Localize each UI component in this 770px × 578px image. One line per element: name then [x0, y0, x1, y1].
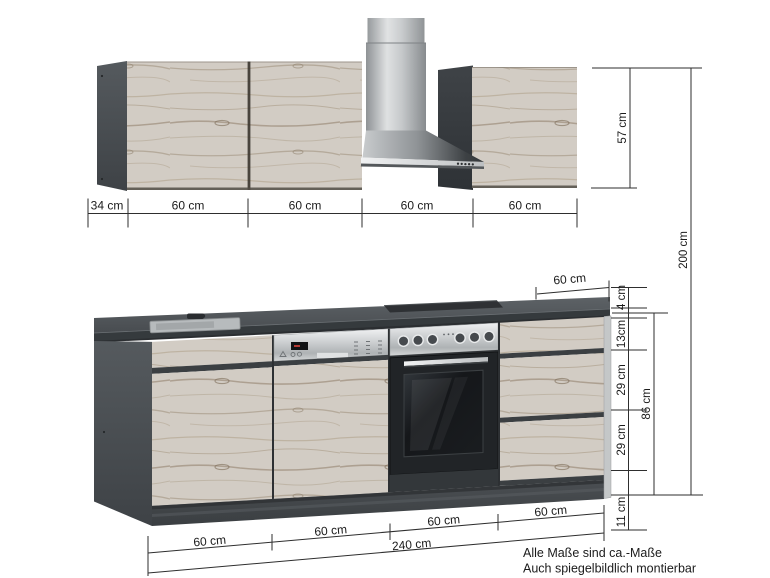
screw-dot	[101, 75, 103, 77]
sink-base-unit	[152, 335, 272, 506]
cabinet-bottom-shadow	[472, 186, 577, 189]
unit-gap	[272, 335, 274, 499]
diagram-canvas: 34 cm 60 cm 60 cm 60 cm 60 cm 57 cm 200 …	[0, 0, 770, 578]
drawer-front	[500, 317, 604, 354]
door-divider	[248, 62, 251, 191]
dim-label-drawer-2: 29 cm	[616, 424, 628, 455]
dim-right-chain: 4 cm 13cm 29 cm 29 cm 11 cm 86 cm	[611, 285, 703, 530]
dim-label-drawer-1: 29 cm	[616, 364, 628, 395]
dim-label-side-panel-width: 34 cm	[91, 199, 124, 213]
dim-label-top-drawer: 13cm	[616, 320, 628, 348]
drawer-base-unit	[500, 317, 604, 486]
drawer-front	[500, 417, 604, 481]
dim-label-total-height: 200 cm	[678, 231, 690, 269]
wall-cabinet-left-doors	[127, 62, 362, 191]
door-front	[152, 367, 272, 506]
cabinet-bottom-shadow	[127, 188, 362, 191]
dim-label-top-60-3: 60 cm	[401, 199, 434, 213]
dim-label-bottom-60-3: 60 cm	[427, 512, 461, 529]
drawer-front	[500, 353, 604, 418]
dim-label-top-60-2: 60 cm	[289, 199, 322, 213]
wall-cabinet-right-door	[472, 67, 577, 188]
faucet	[187, 314, 205, 320]
dim-label-bottom-60-2: 60 cm	[314, 522, 348, 539]
wall-cabinet-right	[438, 66, 577, 191]
unit-gap	[498, 323, 500, 486]
dim-worktop-depth: 60 cm	[536, 271, 609, 302]
footnote-line-1: Alle Maße sind ca.-Maße	[523, 546, 662, 560]
screw-dot	[103, 431, 105, 433]
wall-cabinet-left-side-panel	[97, 61, 127, 191]
dim-label-upper-height: 57 cm	[617, 112, 629, 143]
dim-label-bottom-60-1: 60 cm	[193, 533, 227, 550]
dim-top-row: 34 cm 60 cm 60 cm 60 cm 60 cm	[88, 199, 577, 228]
footnote: Alle Maße sind ca.-Maße Auch spiegelbild…	[523, 546, 696, 576]
base-right-end-panel	[604, 316, 611, 499]
dim-label-bottom-60-4: 60 cm	[534, 503, 568, 520]
dim-label-worktop-depth: 60 cm	[553, 271, 587, 288]
base-side-panel	[94, 341, 152, 526]
dim-label-top-60-1: 60 cm	[172, 199, 205, 213]
base-units	[94, 297, 611, 526]
dim-label-base-height: 86 cm	[641, 388, 653, 419]
kitchen-dimension-diagram: 34 cm 60 cm 60 cm 60 cm 60 cm 57 cm 200 …	[0, 0, 770, 578]
dim-label-plinth: 11 cm	[616, 497, 628, 527]
wall-cabinet-right-side-panel	[438, 66, 473, 191]
hood-chimney-lower	[366, 43, 426, 131]
dim-label-worktop-thickness: 4 cm	[616, 285, 628, 310]
footnote-line-2: Auch spiegelbildlich montierbar	[523, 562, 696, 576]
oven-unit	[390, 323, 498, 492]
dishwasher-door	[274, 360, 388, 499]
dim-label-total-width: 240 cm	[391, 536, 431, 553]
screw-dot	[101, 178, 103, 180]
dim-label-top-60-4: 60 cm	[509, 199, 542, 213]
wall-cabinet-left	[97, 61, 362, 191]
dishwasher-unit	[274, 329, 388, 499]
